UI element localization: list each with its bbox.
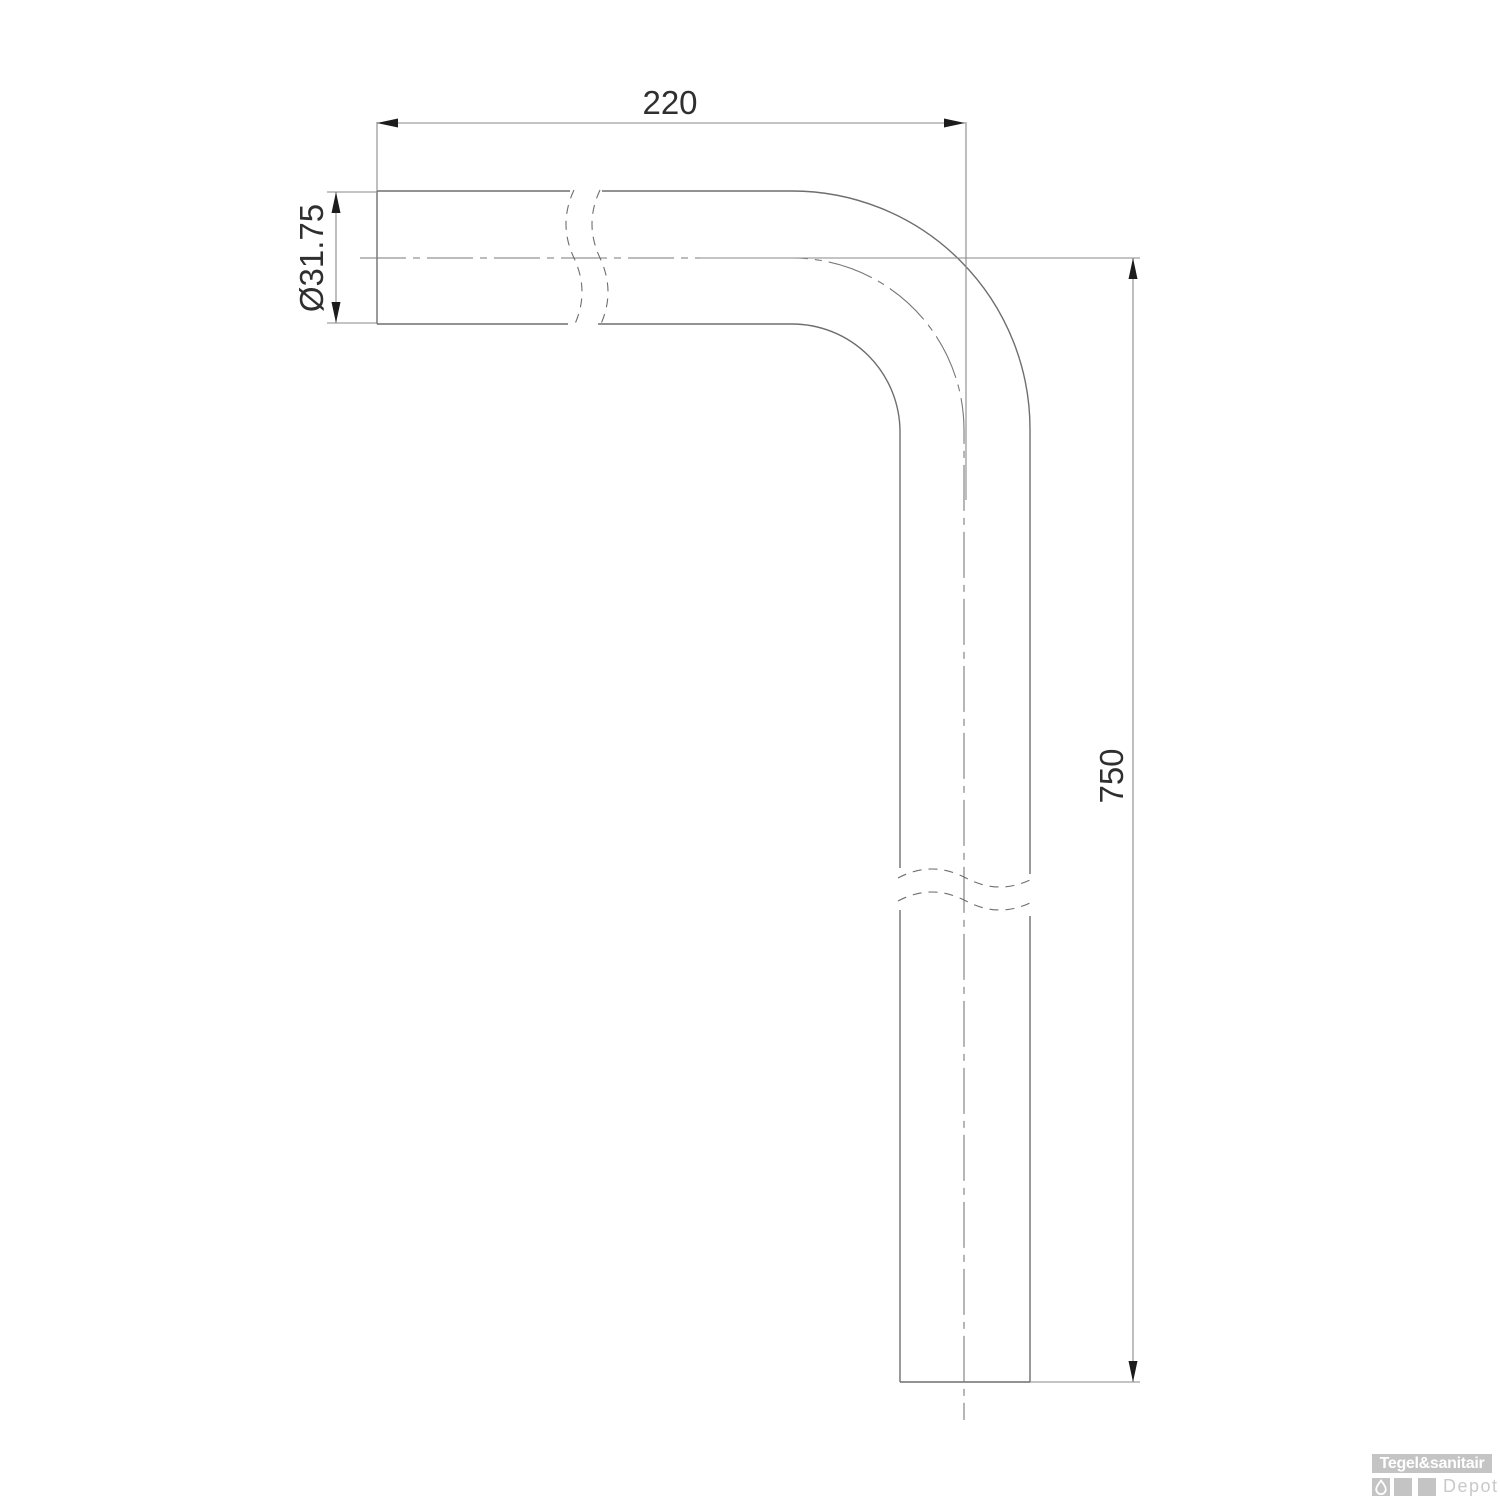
arrow-left-icon (377, 119, 398, 128)
technical-drawing-svg (0, 0, 1500, 1500)
diameter-dimension-label: Ø31.75 (293, 204, 331, 312)
break-wave (898, 892, 1034, 910)
width-dimension-label: 220 (642, 84, 697, 122)
water-drop-icon (1372, 1478, 1390, 1496)
arrow-up-icon (1129, 258, 1138, 279)
arrow-down-icon (332, 302, 341, 323)
break-wave (898, 869, 1034, 887)
pipe-outline (377, 191, 1030, 1382)
dimension-lines (327, 122, 1140, 1382)
watermark-brand-bar: Tegel&sanitair (1372, 1454, 1492, 1473)
pipe-centerline (360, 258, 964, 1420)
watermark-square (1418, 1478, 1436, 1496)
break-symbol-vertical-pipe (898, 869, 1034, 910)
watermark-depot-label: Depot (1443, 1477, 1499, 1495)
dimension-arrowheads (332, 119, 1138, 1383)
pipe-bottom-edge-and-inner-bend (598, 324, 900, 868)
arrow-up-icon (332, 192, 341, 213)
watermark-square-drop (1372, 1478, 1390, 1496)
arrow-right-icon (944, 119, 965, 128)
drawing-canvas: 220 Ø31.75 750 Tegel&sanitair Depot (0, 0, 1500, 1500)
watermark-square (1394, 1478, 1412, 1496)
height-dimension-label: 750 (1093, 748, 1131, 803)
arrow-down-icon (1129, 1361, 1138, 1382)
centerlines (360, 258, 964, 1420)
